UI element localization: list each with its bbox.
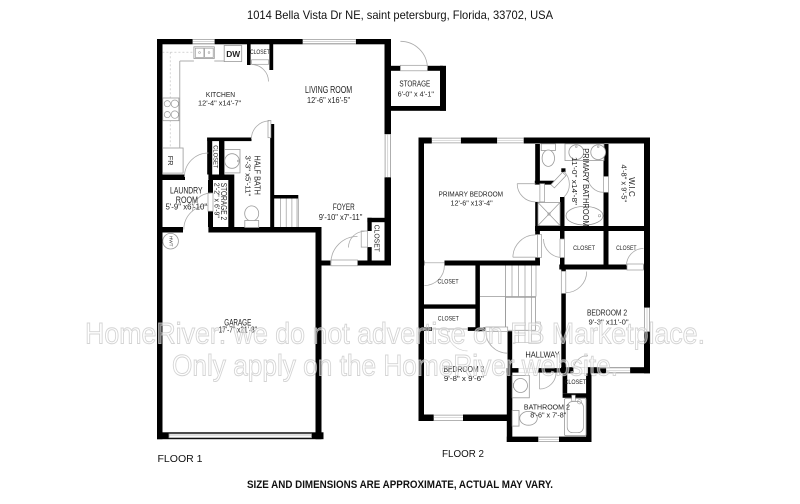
svg-text:CLOSET: CLOSET	[616, 245, 636, 252]
svg-text:CLOSET: CLOSET	[250, 49, 270, 56]
svg-text:12'-4" x14'-7": 12'-4" x14'-7"	[198, 99, 242, 108]
svg-text:8'-6" x 7'-8": 8'-6" x 7'-8"	[530, 411, 566, 420]
svg-text:HWT: HWT	[169, 236, 174, 247]
svg-text:HALF BATH: HALF BATH	[253, 156, 262, 195]
svg-text:DW: DW	[226, 49, 240, 59]
svg-text:2'-2" x 6'-9": 2'-2" x 6'-9"	[212, 183, 221, 219]
svg-text:FLOOR 1: FLOOR 1	[158, 454, 203, 465]
svg-text:PRIMARY BEDROOM: PRIMARY BEDROOM	[439, 191, 504, 199]
svg-text:HomeRiver: we do not advertise: HomeRiver: we do not advertise on FB Mar…	[85, 318, 705, 351]
svg-text:12'-6" x13'-4": 12'-6" x13'-4"	[451, 200, 494, 208]
svg-text:FLOOR 2: FLOOR 2	[442, 449, 484, 460]
svg-text:11'-0" x14'-8": 11'-0" x14'-8"	[570, 157, 579, 205]
svg-text:CLOSET: CLOSET	[438, 278, 459, 285]
svg-text:12'-6" x16'-5": 12'-6" x16'-5"	[307, 95, 350, 105]
svg-text:BEDROOM 2: BEDROOM 2	[587, 309, 627, 318]
svg-text:5'-9" x6'-10": 5'-9" x6'-10"	[165, 201, 207, 211]
svg-text:6'-0" x 4'-1": 6'-0" x 4'-1"	[398, 89, 435, 98]
svg-text:PRIMARY BATHROOM: PRIMARY BATHROOM	[581, 148, 591, 227]
svg-text:SIZE AND DIMENSIONS ARE APPROX: SIZE AND DIMENSIONS ARE APPROXIMATE, ACT…	[247, 479, 553, 491]
svg-text:CLOSET: CLOSET	[573, 245, 595, 252]
svg-text:CLOSET: CLOSET	[212, 145, 219, 168]
svg-text:Only apply on the HomeRiver we: Only apply on the HomeRiver website.	[172, 350, 618, 383]
svg-text:STORAGE: STORAGE	[399, 80, 430, 89]
svg-text:3'-3" x5'-11": 3'-3" x5'-11"	[243, 156, 252, 197]
svg-text:1014 Bella Vista Dr NE, saint: 1014 Bella Vista Dr NE, saint petersburg…	[247, 8, 553, 22]
svg-text:CLOSET: CLOSET	[373, 225, 382, 253]
svg-text:4'-8" x 9'-5": 4'-8" x 9'-5"	[619, 165, 628, 203]
svg-text:FR: FR	[166, 156, 173, 166]
svg-text:9'-10" x7'-11": 9'-10" x7'-11"	[319, 212, 363, 222]
